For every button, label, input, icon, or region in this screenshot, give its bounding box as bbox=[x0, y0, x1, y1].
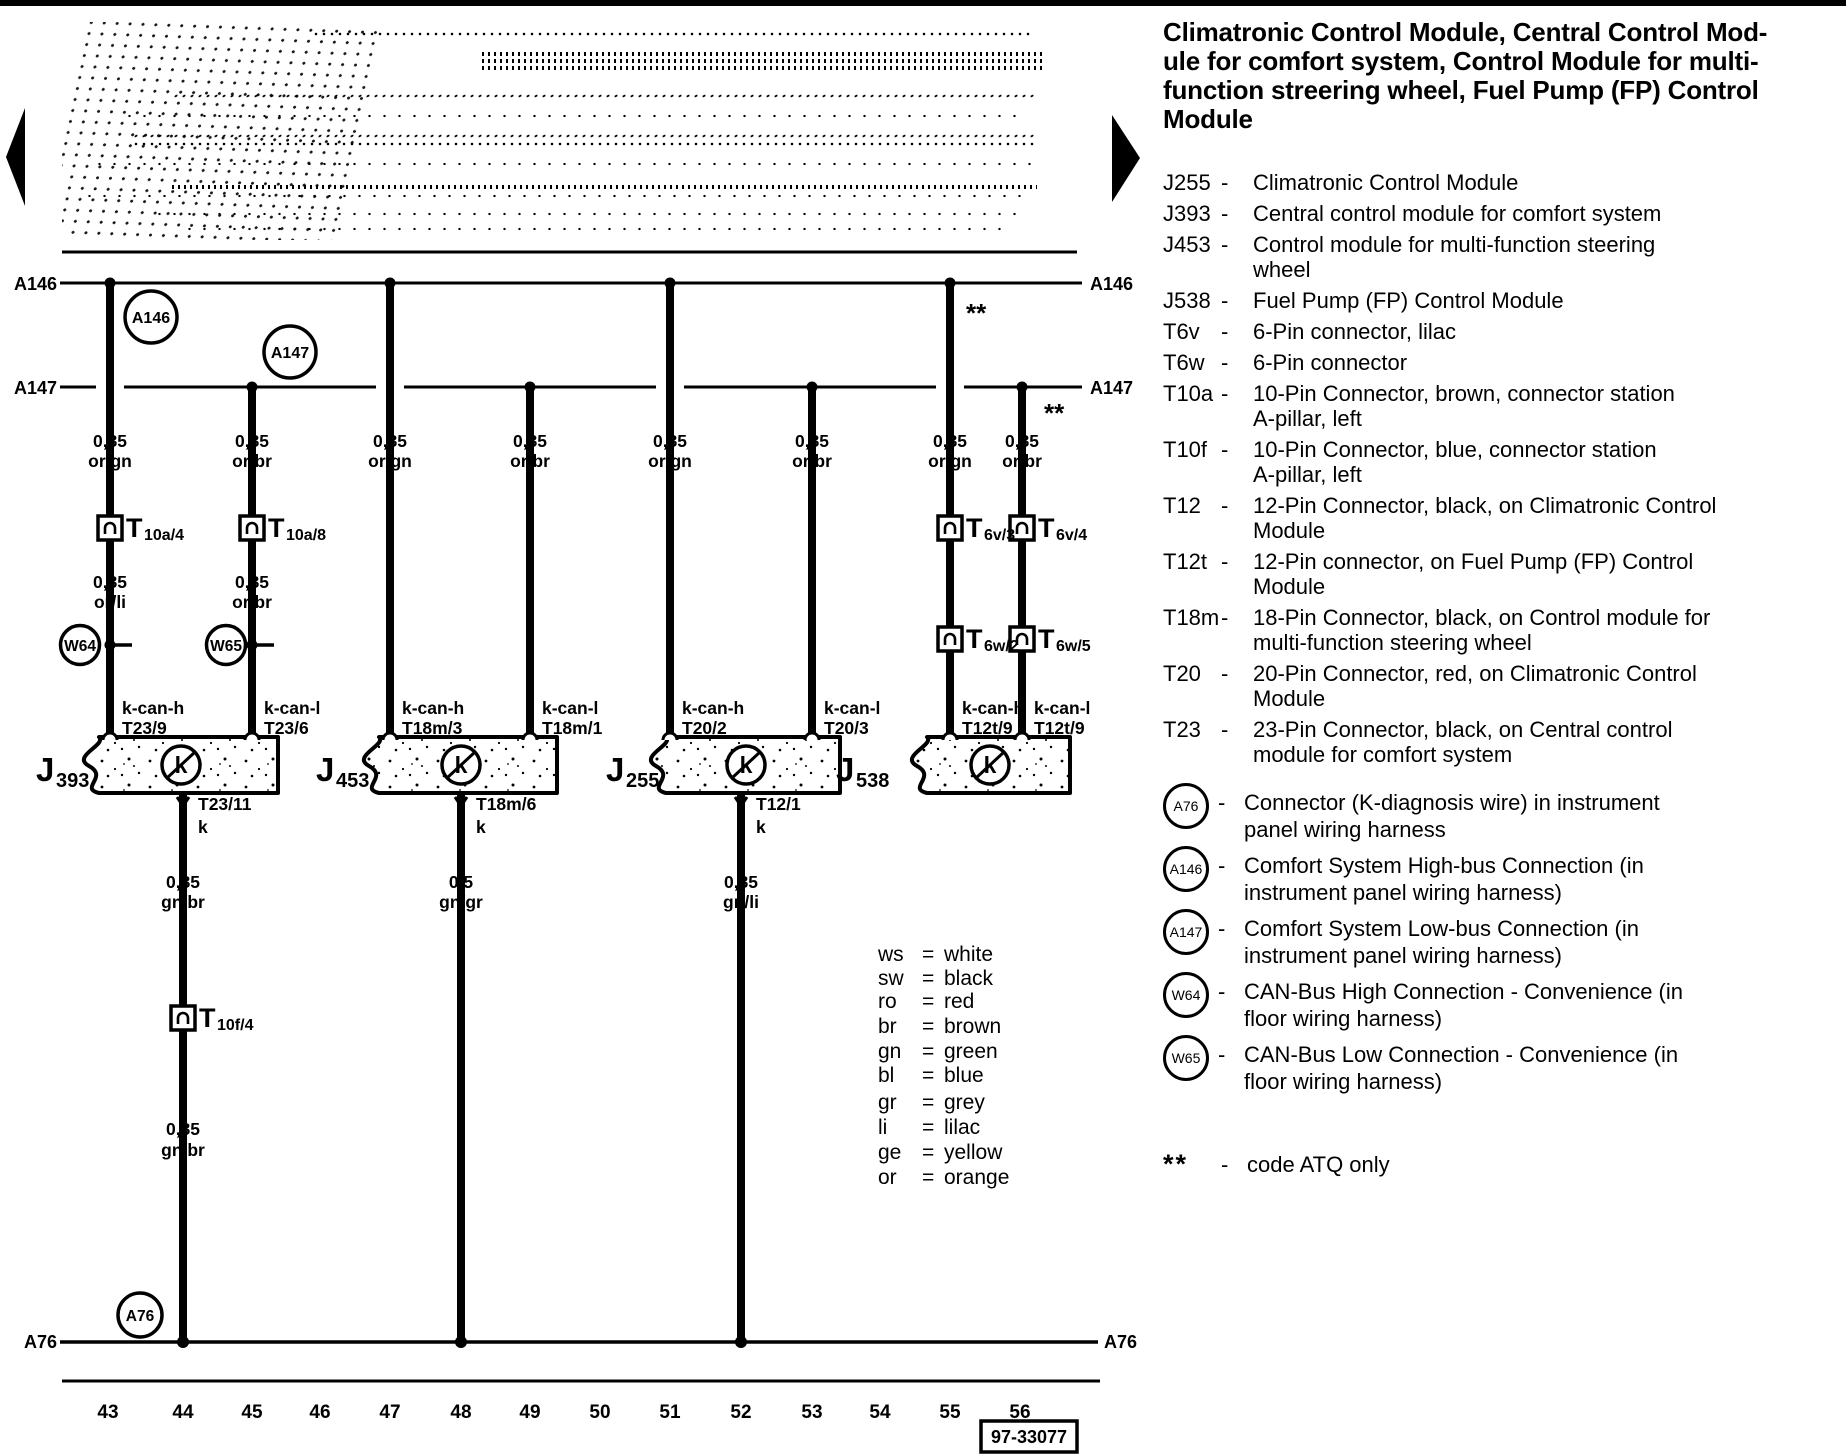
component-code: T12 bbox=[1163, 493, 1221, 543]
circle-ref-desc: Connector (K-diagnosis wire) in instrume… bbox=[1244, 789, 1660, 816]
circle-ref-desc: instrument panel wiring harness) bbox=[1244, 879, 1644, 906]
svg-text:T: T bbox=[199, 1003, 216, 1033]
svg-text:J: J bbox=[606, 751, 624, 788]
component-desc: 10-Pin Connector, brown, connector stati… bbox=[1253, 381, 1675, 406]
svg-text:50: 50 bbox=[589, 1402, 610, 1423]
component-desc: Fuel Pump (FP) Control Module bbox=[1253, 288, 1564, 313]
svg-text:=: = bbox=[922, 1141, 934, 1164]
svg-text:6v/4: 6v/4 bbox=[1056, 527, 1087, 544]
bus-a146-left-label: A146 bbox=[14, 274, 57, 294]
svg-text:orange: orange bbox=[944, 1166, 1009, 1189]
bus-a147-right-label: A147 bbox=[1090, 378, 1133, 398]
star-marker-a147: ** bbox=[1044, 398, 1065, 428]
component-desc: Central control module for comfort syste… bbox=[1253, 201, 1661, 226]
svg-text:green: green bbox=[944, 1040, 998, 1063]
color-code-legend: ws=white sw=black ro=red br=brown gn=gre… bbox=[877, 943, 1009, 1189]
svg-text:T: T bbox=[966, 624, 983, 654]
circle-ref-item: A76-Connector (K-diagnosis wire) in inst… bbox=[1163, 789, 1841, 843]
svg-text:0,35: 0,35 bbox=[166, 1119, 200, 1139]
svg-text:45: 45 bbox=[241, 1402, 263, 1423]
svg-text:or/gn: or/gn bbox=[648, 451, 692, 471]
svg-text:538: 538 bbox=[856, 770, 889, 792]
svg-text:T23/6: T23/6 bbox=[264, 718, 309, 738]
svg-text:li: li bbox=[878, 1116, 887, 1139]
circle-ref-desc: CAN-Bus High Connection - Convenience (i… bbox=[1244, 978, 1683, 1005]
svg-text:43: 43 bbox=[97, 1402, 118, 1423]
footnote-text: code ATQ only bbox=[1247, 1151, 1390, 1178]
wiring-diagram: k k k k bbox=[0, 0, 1160, 1456]
svg-text:T12t/9: T12t/9 bbox=[962, 718, 1013, 738]
svg-text:k-can-l: k-can-l bbox=[264, 698, 320, 718]
k-symbol: k bbox=[455, 752, 468, 778]
svg-text:or/li: or/li bbox=[94, 592, 126, 612]
svg-text:=: = bbox=[922, 1091, 934, 1114]
svg-text:black: black bbox=[944, 967, 994, 990]
svg-text:=: = bbox=[922, 1116, 934, 1139]
component-code: J393 bbox=[1163, 201, 1221, 226]
svg-text:T: T bbox=[1038, 513, 1055, 543]
figure-number: 97-33077 bbox=[991, 1427, 1067, 1447]
pin-labels-top: k-can-hT23/9 k-can-lT23/6 k-can-hT18m/3 … bbox=[122, 698, 1090, 738]
svg-text:blue: blue bbox=[944, 1064, 984, 1087]
connector-t10a4 bbox=[98, 516, 122, 540]
svg-text:T20/2: T20/2 bbox=[682, 718, 727, 738]
svg-text:T: T bbox=[1038, 624, 1055, 654]
component-desc: A-pillar, left bbox=[1253, 406, 1675, 431]
svg-text:T18m/6: T18m/6 bbox=[476, 794, 537, 814]
circle-ref-desc: CAN-Bus Low Connection - Convenience (in bbox=[1244, 1041, 1678, 1068]
svg-text:or/gn: or/gn bbox=[368, 451, 412, 471]
svg-text:or/br: or/br bbox=[232, 451, 272, 471]
svg-text:393: 393 bbox=[56, 770, 89, 792]
svg-text:=: = bbox=[922, 1166, 934, 1189]
svg-text:10f/4: 10f/4 bbox=[217, 1017, 254, 1034]
svg-text:T12t/9: T12t/9 bbox=[1034, 718, 1085, 738]
list-item: J255-Climatronic Control Module bbox=[1163, 170, 1841, 195]
svg-text:10a/8: 10a/8 bbox=[286, 527, 326, 544]
component-desc: 12-Pin Connector, black, on Climatronic … bbox=[1253, 493, 1716, 518]
svg-text:55: 55 bbox=[939, 1402, 961, 1423]
component-desc: 20-Pin Connector, red, on Climatronic Co… bbox=[1253, 661, 1697, 686]
bus-a76-right-label: A76 bbox=[1104, 1332, 1137, 1352]
k-symbol: k bbox=[740, 752, 753, 778]
svg-text:T: T bbox=[268, 513, 285, 543]
svg-text:6v/3: 6v/3 bbox=[984, 527, 1015, 544]
svg-text:6w/2: 6w/2 bbox=[984, 638, 1019, 655]
footnote-symbol: ** bbox=[1163, 1151, 1221, 1178]
circle-ref-item: A147-Comfort System Low-bus Connection (… bbox=[1163, 915, 1841, 969]
list-item: T20-20-Pin Connector, red, on Climatroni… bbox=[1163, 661, 1841, 711]
circle-ref-item: A146-Comfort System High-bus Connection … bbox=[1163, 852, 1841, 906]
svg-text:gn/br: gn/br bbox=[161, 892, 205, 912]
component-desc: 6-Pin connector bbox=[1253, 350, 1407, 375]
svg-text:0,35: 0,35 bbox=[513, 431, 547, 451]
a147-circle-label: A147 bbox=[271, 345, 309, 362]
svg-text:10a/4: 10a/4 bbox=[144, 527, 184, 544]
a146-ring: A146 bbox=[1163, 846, 1209, 892]
title-line: function streering wheel, Fuel Pump (FP)… bbox=[1163, 76, 1841, 105]
svg-text:gn/gr: gn/gr bbox=[439, 892, 483, 912]
component-code: T10f bbox=[1163, 437, 1221, 487]
svg-text:T23/11: T23/11 bbox=[198, 794, 252, 814]
svg-text:k-can-h: k-can-h bbox=[962, 698, 1024, 718]
circle-ref-desc: floor wiring harness) bbox=[1244, 1005, 1683, 1032]
component-code: J255 bbox=[1163, 170, 1221, 195]
title-line: Climatronic Control Module, Central Cont… bbox=[1163, 18, 1841, 47]
svg-text:k-can-h: k-can-h bbox=[682, 698, 744, 718]
component-code: T20 bbox=[1163, 661, 1221, 711]
page-title: Climatronic Control Module, Central Cont… bbox=[1163, 18, 1841, 134]
w64-ring: W64 bbox=[1163, 972, 1209, 1018]
svg-text:=: = bbox=[922, 990, 934, 1013]
svg-text:J: J bbox=[836, 751, 854, 788]
svg-text:0,35: 0,35 bbox=[933, 431, 967, 451]
svg-text:=: = bbox=[922, 967, 934, 990]
list-item: T6w-6-Pin connector bbox=[1163, 350, 1841, 375]
component-code: J453 bbox=[1163, 232, 1221, 282]
svg-text:0,5: 0,5 bbox=[449, 872, 474, 892]
list-item: T10a-10-Pin Connector, brown, connector … bbox=[1163, 381, 1841, 431]
circle-reference-list: A76-Connector (K-diagnosis wire) in inst… bbox=[1163, 789, 1841, 1095]
circle-ref-desc: Comfort System Low-bus Connection (in bbox=[1244, 915, 1639, 942]
svg-text:0,35: 0,35 bbox=[235, 431, 269, 451]
svg-text:0,35: 0,35 bbox=[653, 431, 687, 451]
svg-text:or/br: or/br bbox=[1002, 451, 1042, 471]
component-desc: 23-Pin Connector, black, on Central cont… bbox=[1253, 717, 1672, 742]
svg-text:47: 47 bbox=[379, 1402, 400, 1423]
svg-text:red: red bbox=[944, 990, 974, 1013]
svg-text:k-can-l: k-can-l bbox=[824, 698, 880, 718]
component-desc: 18-Pin Connector, black, on Control modu… bbox=[1253, 605, 1710, 630]
component-desc: module for comfort system bbox=[1253, 742, 1672, 767]
svg-text:0,35: 0,35 bbox=[724, 872, 758, 892]
svg-text:gn/br: gn/br bbox=[161, 1140, 205, 1160]
svg-text:ro: ro bbox=[878, 990, 897, 1013]
svg-text:52: 52 bbox=[730, 1402, 751, 1423]
svg-text:k: k bbox=[756, 817, 766, 837]
component-desc: Module bbox=[1253, 518, 1716, 543]
k-symbol: k bbox=[175, 752, 188, 778]
svg-text:gr: gr bbox=[878, 1091, 897, 1114]
svg-text:brown: brown bbox=[944, 1015, 1001, 1038]
svg-text:T: T bbox=[126, 513, 143, 543]
module-boxes bbox=[84, 737, 1070, 793]
component-desc: 10-Pin Connector, blue, connector statio… bbox=[1253, 437, 1657, 462]
svg-text:255: 255 bbox=[626, 770, 659, 792]
svg-text:br: br bbox=[878, 1015, 897, 1038]
list-item: T18m-18-Pin Connector, black, on Control… bbox=[1163, 605, 1841, 655]
component-list: J255-Climatronic Control Module J393-Cen… bbox=[1163, 170, 1841, 767]
svg-text:k: k bbox=[198, 817, 208, 837]
track-numbers: 43 44 45 46 47 48 49 50 51 52 53 54 55 5… bbox=[97, 1402, 1030, 1423]
svg-text:0,35: 0,35 bbox=[93, 431, 127, 451]
component-code: T6v bbox=[1163, 319, 1221, 344]
circle-ref-item: W64-CAN-Bus High Connection - Convenienc… bbox=[1163, 978, 1841, 1032]
list-item: T10f-10-Pin Connector, blue, connector s… bbox=[1163, 437, 1841, 487]
svg-text:0,35: 0,35 bbox=[166, 872, 200, 892]
svg-text:or/br: or/br bbox=[232, 592, 272, 612]
svg-text:k-can-h: k-can-h bbox=[122, 698, 184, 718]
w64-circle-label: W64 bbox=[64, 638, 96, 655]
svg-text:0,35: 0,35 bbox=[1005, 431, 1039, 451]
svg-text:453: 453 bbox=[336, 770, 369, 792]
a76-circle-label: A76 bbox=[126, 1308, 155, 1325]
svg-text:J: J bbox=[36, 751, 54, 788]
title-line: Module bbox=[1163, 105, 1841, 134]
svg-text:or/gn: or/gn bbox=[928, 451, 972, 471]
connector-t6w2 bbox=[938, 627, 962, 651]
svg-text:ws: ws bbox=[877, 943, 904, 966]
a146-circle-label: A146 bbox=[132, 310, 170, 327]
gauge-labels-upper: 0,35or/gn 0,35or/br 0,35or/gn 0,35or/br … bbox=[88, 431, 1042, 471]
svg-text:k: k bbox=[476, 817, 486, 837]
bus-a147-left-label: A147 bbox=[14, 378, 57, 398]
w65-circle-label: W65 bbox=[210, 638, 242, 655]
svg-text:0,35: 0,35 bbox=[795, 431, 829, 451]
w65-ring: W65 bbox=[1163, 1035, 1209, 1081]
component-code: T6w bbox=[1163, 350, 1221, 375]
star-marker-a146: ** bbox=[966, 298, 987, 328]
svg-text:yellow: yellow bbox=[944, 1141, 1003, 1164]
svg-text:46: 46 bbox=[309, 1402, 330, 1423]
component-code: T12t bbox=[1163, 549, 1221, 599]
component-desc: Control module for multi-function steeri… bbox=[1253, 232, 1655, 257]
svg-text:J: J bbox=[316, 751, 334, 788]
svg-text:k-can-l: k-can-l bbox=[542, 698, 598, 718]
wiring-diagram-page: k k k k bbox=[0, 0, 1846, 1456]
svg-text:gn/li: gn/li bbox=[723, 892, 759, 912]
a76-ring: A76 bbox=[1163, 783, 1209, 829]
svg-text:lilac: lilac bbox=[944, 1116, 980, 1139]
svg-text:44: 44 bbox=[172, 1402, 194, 1423]
svg-text:0,35: 0,35 bbox=[373, 431, 407, 451]
footnote: ** - code ATQ only bbox=[1163, 1151, 1841, 1178]
component-desc: Module bbox=[1253, 574, 1693, 599]
connector-t10a8 bbox=[240, 516, 264, 540]
svg-text:bl: bl bbox=[878, 1064, 894, 1087]
component-desc: multi-function steering wheel bbox=[1253, 630, 1710, 655]
component-desc: 6-Pin connector, lilac bbox=[1253, 319, 1456, 344]
connector-t10f4 bbox=[171, 1006, 195, 1030]
gauge-labels-mid: 0,35or/li 0,35or/br bbox=[93, 572, 272, 612]
svg-text:0,35: 0,35 bbox=[93, 572, 127, 592]
list-item: J393-Central control module for comfort … bbox=[1163, 201, 1841, 226]
list-item: J453-Control module for multi-function s… bbox=[1163, 232, 1841, 282]
svg-text:53: 53 bbox=[801, 1402, 822, 1423]
circle-ref-desc: floor wiring harness) bbox=[1244, 1068, 1678, 1095]
svg-text:6w/5: 6w/5 bbox=[1056, 638, 1091, 655]
component-code: J538 bbox=[1163, 288, 1221, 313]
svg-text:T12/1: T12/1 bbox=[756, 794, 801, 814]
bus-a76-left-label: A76 bbox=[24, 1332, 57, 1352]
list-item: T6v-6-Pin connector, lilac bbox=[1163, 319, 1841, 344]
svg-text:=: = bbox=[922, 943, 934, 966]
list-item: T12t-12-Pin connector, on Fuel Pump (FP)… bbox=[1163, 549, 1841, 599]
connector-t6v3 bbox=[938, 516, 962, 540]
svg-text:T18m/1: T18m/1 bbox=[542, 718, 603, 738]
pin-labels-bottom: T23/11k T18m/6k T12/1k bbox=[198, 794, 801, 837]
svg-text:or/br: or/br bbox=[510, 451, 550, 471]
svg-text:=: = bbox=[922, 1015, 934, 1038]
bus-a146-right-label: A146 bbox=[1090, 274, 1133, 294]
circle-ref-desc: panel wiring harness bbox=[1244, 816, 1660, 843]
list-item: J538-Fuel Pump (FP) Control Module bbox=[1163, 288, 1841, 313]
component-desc: A-pillar, left bbox=[1253, 462, 1657, 487]
svg-text:ge: ge bbox=[878, 1141, 901, 1164]
left-arrow-icon bbox=[6, 108, 25, 206]
svg-text:or/gn: or/gn bbox=[88, 451, 132, 471]
svg-text:gn: gn bbox=[878, 1040, 901, 1063]
component-code: T10a bbox=[1163, 381, 1221, 431]
svg-text:sw: sw bbox=[878, 967, 905, 990]
svg-text:k-can-l: k-can-l bbox=[1034, 698, 1090, 718]
svg-text:=: = bbox=[922, 1040, 934, 1063]
title-line: ule for comfort system, Control Module f… bbox=[1163, 47, 1841, 76]
svg-text:or/br: or/br bbox=[792, 451, 832, 471]
component-desc: 12-Pin connector, on Fuel Pump (FP) Cont… bbox=[1253, 549, 1693, 574]
k-symbol: k bbox=[984, 752, 997, 778]
circle-ref-item: W65-CAN-Bus Low Connection - Convenience… bbox=[1163, 1041, 1841, 1095]
component-desc: Climatronic Control Module bbox=[1253, 170, 1518, 195]
list-item: T12-12-Pin Connector, black, on Climatro… bbox=[1163, 493, 1841, 543]
svg-text:T20/3: T20/3 bbox=[824, 718, 869, 738]
svg-text:0,35: 0,35 bbox=[235, 572, 269, 592]
component-desc: wheel bbox=[1253, 257, 1655, 282]
component-code: T18m bbox=[1163, 605, 1221, 655]
list-item: T23-23-Pin Connector, black, on Central … bbox=[1163, 717, 1841, 767]
a147-ring: A147 bbox=[1163, 909, 1209, 955]
svg-text:white: white bbox=[943, 943, 993, 966]
svg-text:54: 54 bbox=[869, 1402, 891, 1423]
svg-text:k-can-h: k-can-h bbox=[402, 698, 464, 718]
svg-text:T23/9: T23/9 bbox=[122, 718, 167, 738]
component-desc: Module bbox=[1253, 686, 1697, 711]
svg-text:51: 51 bbox=[659, 1402, 681, 1423]
component-code: T23 bbox=[1163, 717, 1221, 767]
svg-text:T18m/3: T18m/3 bbox=[402, 718, 463, 738]
svg-text:=: = bbox=[922, 1064, 934, 1087]
svg-text:or: or bbox=[878, 1166, 897, 1189]
right-arrow-icon bbox=[1112, 115, 1140, 202]
svg-text:49: 49 bbox=[519, 1402, 540, 1423]
svg-text:grey: grey bbox=[944, 1091, 985, 1114]
legend-panel: Climatronic Control Module, Central Cont… bbox=[1163, 18, 1841, 1178]
svg-text:T: T bbox=[966, 513, 983, 543]
circle-ref-desc: instrument panel wiring harness) bbox=[1244, 942, 1639, 969]
circle-ref-desc: Comfort System High-bus Connection (in bbox=[1244, 852, 1644, 879]
svg-text:48: 48 bbox=[450, 1402, 471, 1423]
